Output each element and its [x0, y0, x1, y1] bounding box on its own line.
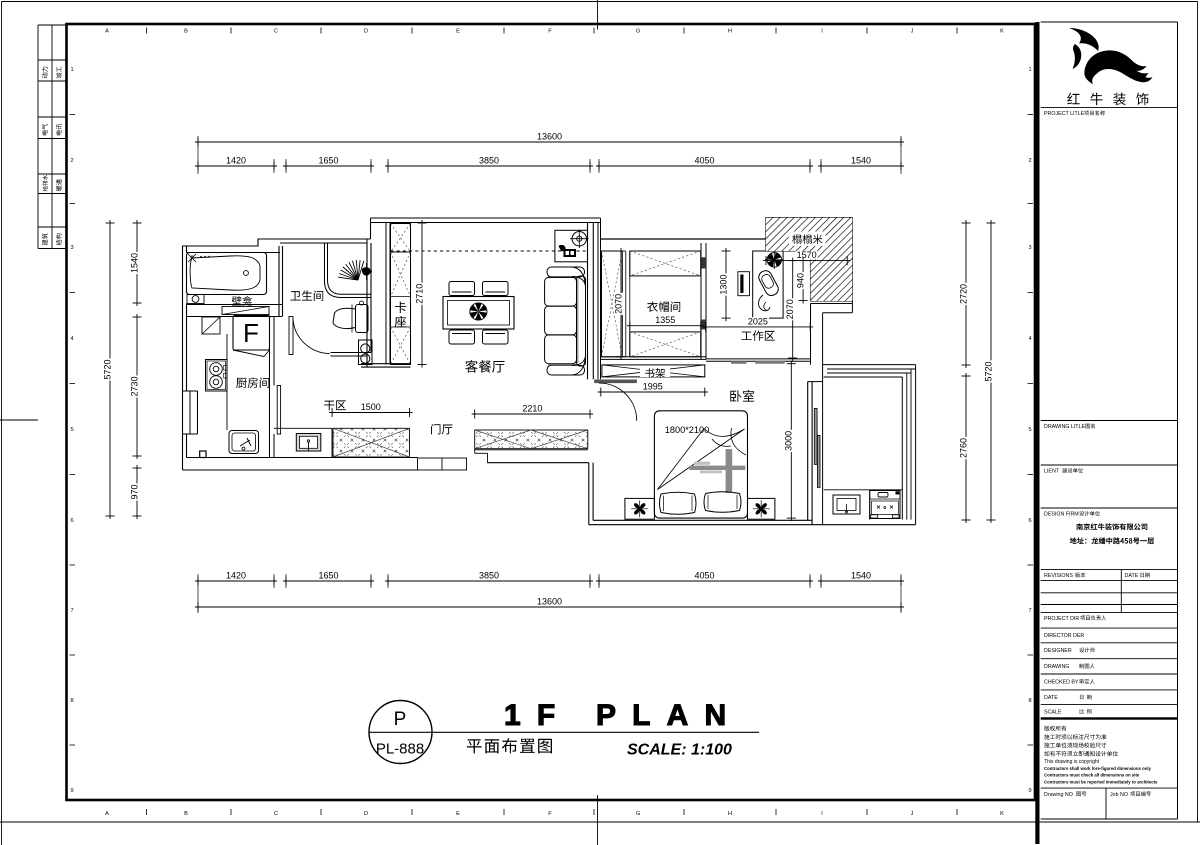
svg-text:Job NO: Job NO: [1110, 792, 1128, 798]
svg-text:F: F: [548, 29, 552, 35]
svg-text:K: K: [1000, 29, 1004, 35]
svg-text:A: A: [105, 29, 109, 35]
svg-text:DESIGNER: DESIGNER: [1044, 648, 1072, 654]
svg-text:This drawing is copyright: This drawing is copyright: [1044, 759, 1100, 765]
svg-text:1650: 1650: [318, 570, 338, 580]
svg-text:E: E: [456, 811, 460, 817]
svg-text:A: A: [105, 811, 109, 817]
svg-text:3: 3: [71, 245, 74, 251]
svg-text:C: C: [274, 29, 278, 35]
svg-text:B: B: [184, 811, 188, 817]
svg-text:1650: 1650: [318, 155, 338, 165]
svg-text:E: E: [456, 29, 460, 35]
svg-text:5: 5: [71, 427, 74, 433]
svg-text:F: F: [243, 318, 259, 348]
svg-text:5720: 5720: [983, 361, 993, 381]
svg-text:970: 970: [129, 484, 139, 499]
svg-text:SCALE: 1:100: SCALE: 1:100: [627, 742, 732, 759]
svg-text:DATE: DATE: [1125, 573, 1139, 579]
svg-text:F: F: [548, 811, 552, 817]
svg-text:1: 1: [71, 67, 74, 73]
svg-text:LIENT: LIENT: [1044, 469, 1060, 475]
svg-text:3000: 3000: [784, 431, 794, 451]
svg-text:SCALE: SCALE: [1044, 710, 1062, 716]
svg-text:4: 4: [1029, 336, 1032, 342]
svg-text:9: 9: [71, 788, 74, 794]
svg-text:1540: 1540: [851, 155, 871, 165]
svg-text:1300: 1300: [718, 275, 728, 295]
svg-text:PROJECT DIR: PROJECT DIR: [1044, 616, 1079, 622]
svg-text:2: 2: [71, 158, 74, 164]
svg-text:2210: 2210: [522, 403, 542, 413]
svg-text:1500: 1500: [361, 402, 381, 412]
svg-text:2760: 2760: [958, 438, 968, 458]
svg-text:Contractors must check all dim: Contractors must check all dimensions on…: [1044, 773, 1140, 778]
svg-text:6: 6: [1029, 518, 1032, 524]
svg-text:PL-888: PL-888: [376, 741, 424, 758]
svg-text:DIRECTOR DER: DIRECTOR DER: [1044, 633, 1084, 639]
svg-text:1540: 1540: [129, 253, 139, 273]
svg-text:CHECKED BY: CHECKED BY: [1044, 680, 1079, 686]
svg-text:DESIGN FIRM: DESIGN FIRM: [1044, 512, 1079, 518]
svg-text:D: D: [364, 29, 368, 35]
svg-text:2710: 2710: [414, 284, 424, 304]
svg-text:5: 5: [1029, 427, 1032, 433]
svg-text:1420: 1420: [226, 155, 246, 165]
svg-text:PROJECT LITLE: PROJECT LITLE: [1044, 111, 1085, 117]
svg-text:3: 3: [1029, 245, 1032, 251]
svg-text:3850: 3850: [479, 570, 499, 580]
svg-text:2720: 2720: [958, 284, 968, 304]
svg-text:4: 4: [71, 336, 74, 342]
svg-text:Contractors must be reported i: Contractors must be reported immediately…: [1044, 780, 1158, 785]
svg-text:H: H: [728, 29, 732, 35]
svg-text:B: B: [184, 29, 188, 35]
svg-text:13600: 13600: [537, 596, 562, 606]
svg-text:J: J: [911, 811, 914, 817]
svg-text:940: 940: [796, 273, 806, 288]
svg-text:1: 1: [1029, 67, 1032, 73]
svg-text:K: K: [1000, 811, 1004, 817]
svg-text:3850: 3850: [479, 155, 499, 165]
svg-text:5720: 5720: [102, 359, 112, 379]
svg-text:2070: 2070: [785, 299, 795, 319]
svg-text:1420: 1420: [226, 570, 246, 580]
svg-text:G: G: [636, 811, 640, 817]
svg-text:J: J: [911, 29, 914, 35]
svg-text:2070: 2070: [613, 294, 623, 314]
svg-text:1570: 1570: [797, 250, 817, 260]
svg-text:1F PLAN: 1F PLAN: [504, 699, 742, 732]
svg-text:8: 8: [71, 698, 74, 704]
svg-text:6: 6: [71, 518, 74, 524]
svg-text:4050: 4050: [694, 570, 714, 580]
svg-text:13600: 13600: [537, 131, 562, 141]
svg-text:1355: 1355: [655, 315, 675, 325]
svg-text:2: 2: [1029, 158, 1032, 164]
svg-text:P: P: [394, 709, 407, 730]
svg-text:DRAWING LITLE: DRAWING LITLE: [1044, 424, 1085, 430]
svg-text:2730: 2730: [129, 376, 139, 396]
svg-text:1540: 1540: [851, 570, 871, 580]
svg-text:8: 8: [1029, 698, 1032, 704]
svg-text:C: C: [274, 811, 278, 817]
svg-text:9: 9: [1029, 788, 1032, 794]
svg-text:7: 7: [1029, 608, 1032, 614]
svg-text:REVISIONS: REVISIONS: [1044, 573, 1073, 579]
svg-text:DRAWING: DRAWING: [1044, 664, 1069, 670]
svg-text:Contractors shall work fore-fi: Contractors shall work fore-figured dime…: [1044, 766, 1152, 771]
svg-text:G: G: [636, 29, 640, 35]
svg-text:D: D: [364, 811, 368, 817]
svg-text:H: H: [728, 811, 732, 817]
svg-text:4050: 4050: [694, 155, 714, 165]
svg-text:7: 7: [71, 608, 74, 614]
svg-text:1800*2100: 1800*2100: [665, 425, 709, 435]
svg-text:1995: 1995: [643, 381, 663, 391]
svg-text:Drawing NO: Drawing NO: [1044, 792, 1073, 798]
svg-text:DATE: DATE: [1044, 695, 1058, 701]
svg-text:2025: 2025: [748, 316, 768, 326]
